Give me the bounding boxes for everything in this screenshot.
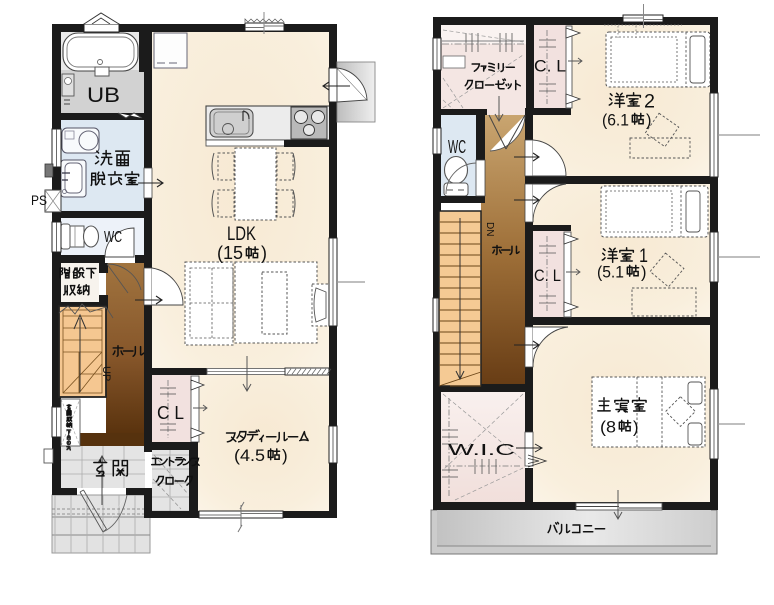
svg-text:): ) [261,243,267,263]
svg-text:UB: UB [87,84,120,107]
svg-text:W.I.C: W.I.C [448,442,515,459]
svg-text:): ) [282,446,288,465]
svg-text:(4.5: (4.5 [234,446,265,465]
svg-text:C. L: C. L [534,57,566,76]
svg-text:C L: C L [157,403,184,423]
svg-text:(6.1: (6.1 [602,112,629,130]
svg-text:UP: UP [100,366,112,381]
svg-text:LDK: LDK [227,223,256,245]
svg-text:(5.1: (5.1 [597,264,624,282]
svg-text:2: 2 [644,92,655,113]
svg-text:WC: WC [104,229,122,246]
svg-text:C. L: C. L [534,266,561,285]
svg-text:): ) [646,112,652,130]
svg-text:(15: (15 [217,243,243,263]
svg-text:(8: (8 [600,419,616,437]
svg-text:DN: DN [484,222,495,236]
svg-text:WC: WC [448,137,466,157]
svg-text:): ) [633,419,639,437]
svg-text:PS: PS [31,192,47,208]
svg-text:): ) [641,264,647,282]
